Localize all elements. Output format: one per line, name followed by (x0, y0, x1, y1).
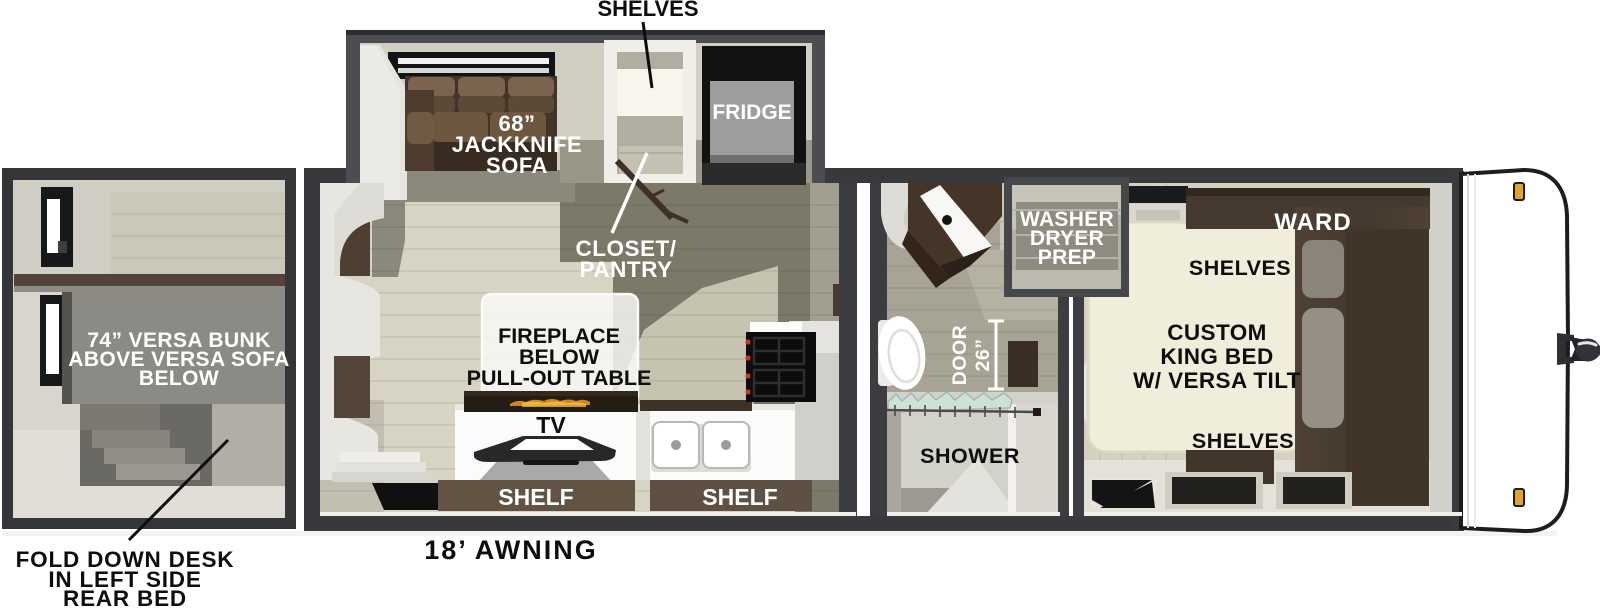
svg-text:PANTRY: PANTRY (580, 257, 673, 282)
svg-text:DOOR: DOOR (949, 325, 971, 386)
svg-text:WARD: WARD (1274, 209, 1351, 236)
svg-text:BELOW: BELOW (139, 367, 219, 390)
svg-text:26”: 26” (972, 339, 994, 372)
svg-text:TV: TV (536, 412, 566, 438)
svg-text:PREP: PREP (1038, 246, 1096, 269)
svg-text:SHELF: SHELF (498, 484, 573, 510)
svg-text:SOFA: SOFA (486, 153, 548, 178)
svg-text:W/ VERSA TILT: W/ VERSA TILT (1133, 368, 1301, 393)
svg-text:SHELF: SHELF (702, 484, 777, 510)
svg-text:18’ AWNING: 18’ AWNING (424, 535, 598, 565)
svg-text:SHELVES: SHELVES (1189, 256, 1291, 280)
svg-text:KING BED: KING BED (1160, 344, 1273, 369)
svg-text:SHELVES: SHELVES (597, 0, 698, 21)
svg-text:PULL-OUT TABLE: PULL-OUT TABLE (467, 366, 652, 390)
svg-text:SHOWER: SHOWER (920, 444, 1020, 468)
svg-text:FRIDGE: FRIDGE (712, 101, 791, 124)
svg-text:SHELVES: SHELVES (1192, 429, 1294, 453)
svg-text:REAR BED: REAR BED (63, 586, 187, 609)
svg-text:CUSTOM: CUSTOM (1167, 320, 1267, 345)
